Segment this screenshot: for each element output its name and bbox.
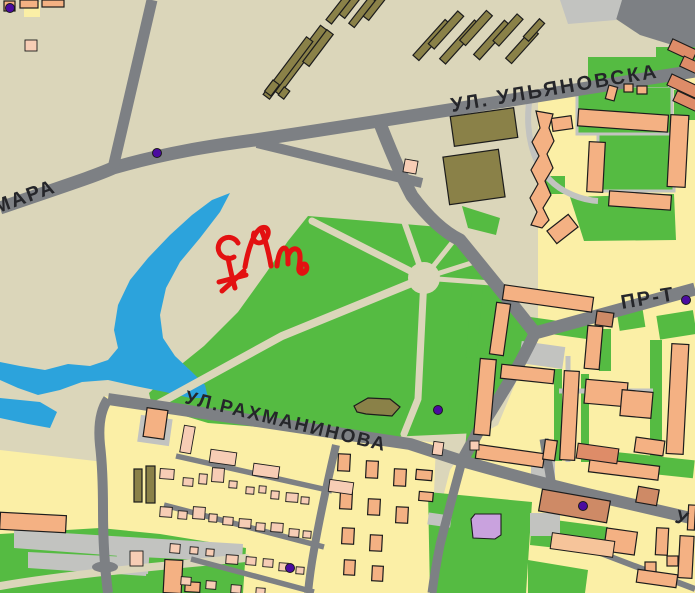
city-map[interactable]: УЛ. УЛЬЯНОВСКА МАРА УЛ.РАХМАНИНОВА ПР-Т … — [0, 0, 695, 593]
house — [289, 529, 300, 538]
apartment-building — [584, 325, 603, 369]
apartment-building — [620, 390, 653, 419]
apartment-building — [543, 439, 558, 460]
house — [206, 549, 214, 557]
house — [286, 493, 299, 503]
house — [226, 555, 239, 565]
apartment-building — [0, 512, 66, 532]
apartment-building — [366, 461, 379, 479]
apartment-building — [20, 0, 38, 8]
apartment-building — [551, 116, 573, 132]
apartment-building — [394, 469, 407, 487]
house — [193, 507, 206, 520]
apartment-building — [372, 566, 384, 582]
apartment-building — [587, 142, 606, 193]
house — [403, 159, 418, 174]
poi-marker[interactable] — [434, 406, 443, 415]
apartment-building — [163, 560, 183, 593]
house — [223, 517, 234, 526]
house — [190, 547, 198, 555]
apartment-building — [416, 469, 433, 480]
house — [271, 523, 284, 533]
park-plaza — [408, 262, 440, 294]
apartment-building — [342, 528, 355, 545]
house — [271, 491, 280, 500]
map-viewport[interactable]: УЛ. УЛЬЯНОВСКА МАРА УЛ.РАХМАНИНОВА ПР-Т … — [0, 0, 695, 593]
house — [239, 519, 252, 529]
house — [160, 469, 175, 480]
house — [170, 544, 181, 554]
apartment-building — [667, 556, 678, 566]
industrial-building — [146, 466, 155, 503]
house — [296, 567, 304, 575]
house — [178, 511, 188, 520]
house — [256, 523, 266, 532]
house — [181, 577, 192, 586]
apartment-building — [678, 536, 694, 579]
house — [263, 559, 274, 568]
house — [246, 557, 257, 566]
apartment-building — [636, 486, 659, 505]
apartment-building — [419, 491, 434, 501]
poi-marker[interactable] — [153, 149, 162, 158]
poi-marker[interactable] — [6, 4, 15, 13]
apartment-building — [42, 0, 64, 7]
house — [246, 487, 254, 495]
house — [470, 441, 479, 450]
house — [212, 468, 225, 483]
house — [130, 551, 143, 566]
apartment-building — [396, 507, 409, 524]
house — [432, 441, 444, 455]
apartment-building — [655, 528, 668, 556]
house — [301, 497, 309, 505]
apartment-building — [368, 499, 381, 516]
house — [209, 514, 218, 523]
house — [259, 486, 266, 493]
poi-marker[interactable] — [579, 502, 588, 511]
public-building — [471, 514, 501, 539]
apartment-building — [687, 505, 695, 530]
poi-marker[interactable] — [682, 296, 691, 305]
poi-marker[interactable] — [286, 564, 295, 573]
house — [160, 507, 173, 518]
house — [229, 481, 237, 489]
apartment-building — [667, 115, 689, 188]
apartment-building — [637, 86, 647, 94]
apartment-building — [344, 560, 356, 576]
house — [183, 478, 194, 487]
apartment-building — [595, 311, 614, 327]
stadium-field — [598, 134, 674, 191]
industrial-building — [134, 469, 142, 502]
house — [256, 588, 265, 593]
house — [206, 581, 217, 590]
house — [25, 40, 37, 51]
apartment-building — [634, 437, 665, 456]
apartment-building — [143, 408, 168, 440]
house — [231, 585, 242, 593]
industrial-building — [443, 149, 505, 204]
apartment-building — [338, 454, 351, 472]
apartment-building — [370, 535, 383, 552]
house — [303, 531, 311, 539]
courtyard-pavement — [530, 513, 560, 536]
house — [199, 474, 208, 485]
